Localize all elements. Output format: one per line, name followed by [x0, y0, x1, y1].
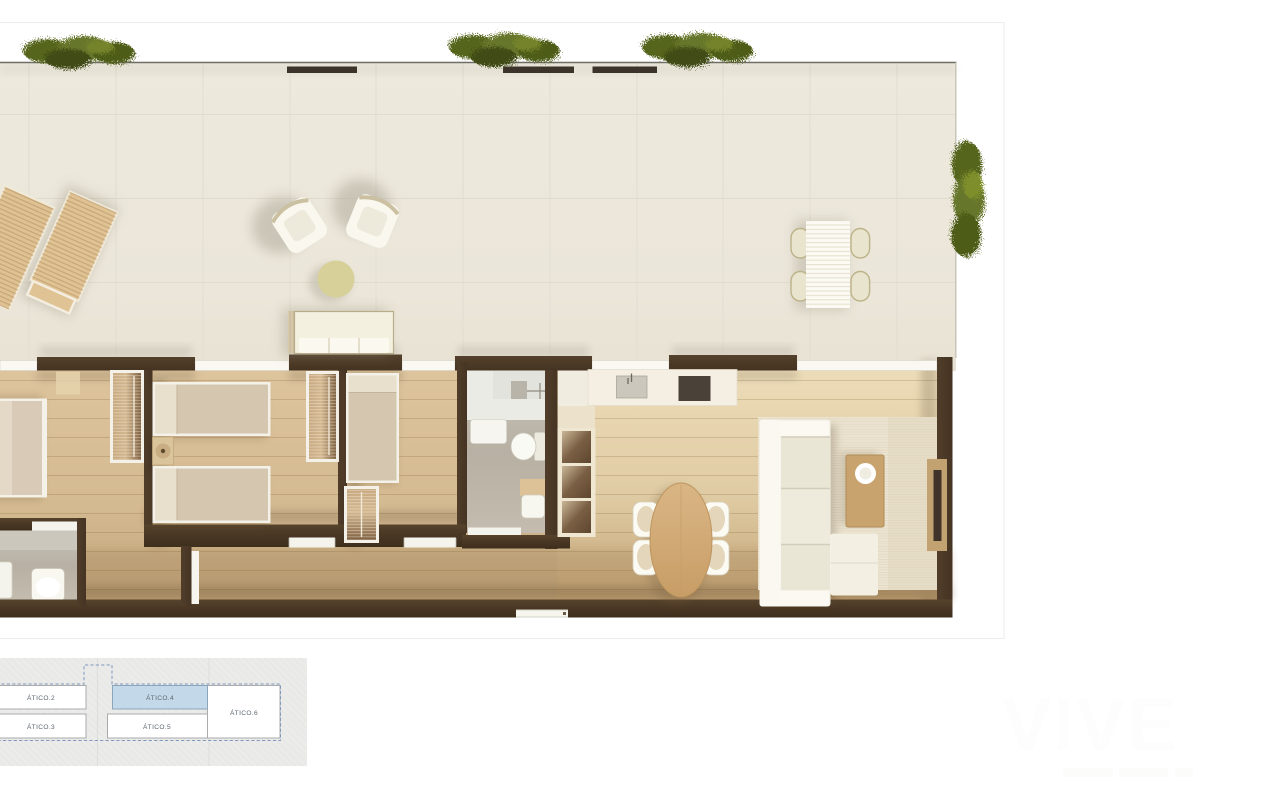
svg-text:ÁTICO.5: ÁTICO.5: [143, 722, 171, 731]
svg-text:ÁTICO.4: ÁTICO.4: [146, 693, 174, 702]
svg-text:ÁTICO.6: ÁTICO.6: [230, 708, 258, 717]
svg-text:ÁTICO.2: ÁTICO.2: [27, 693, 55, 702]
svg-text:VIVE: VIVE: [1002, 683, 1179, 766]
svg-text:ÁTICO.3: ÁTICO.3: [27, 722, 55, 731]
